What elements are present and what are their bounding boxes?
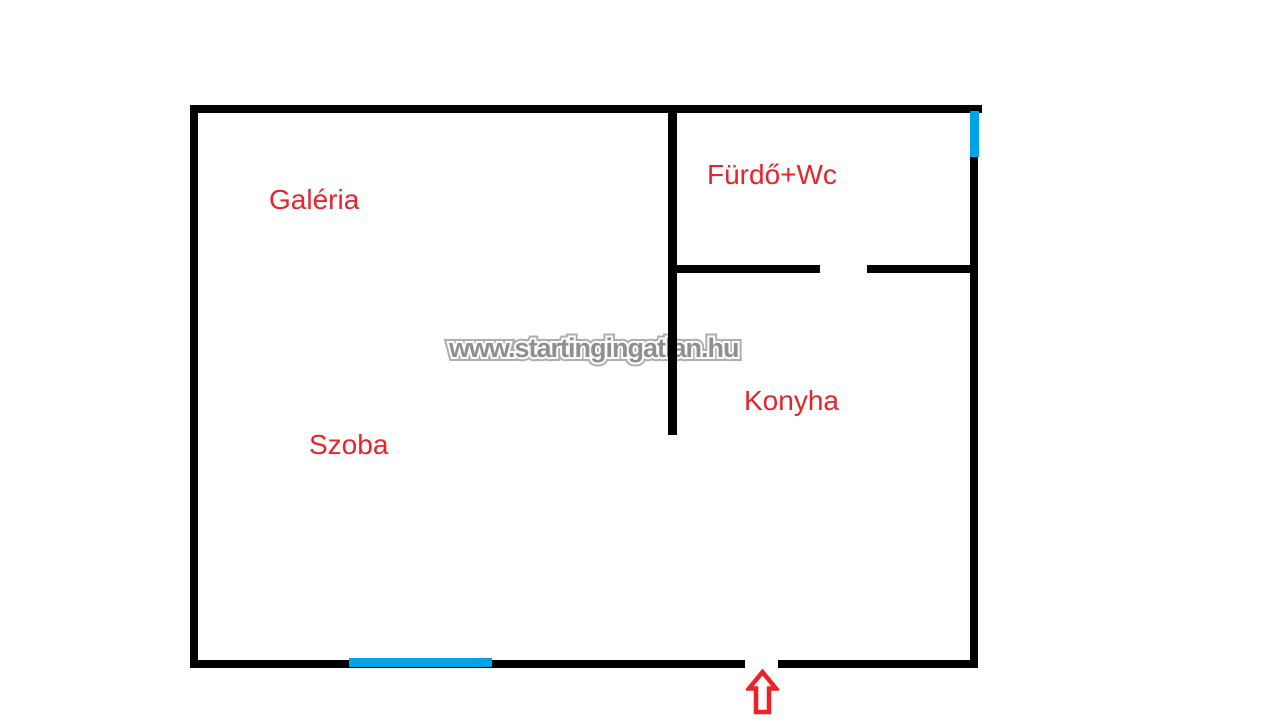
window-marker-bathroom-right [970,111,979,157]
room-label-szoba: Szoba [309,430,388,461]
window-marker-szoba-bottom [349,658,492,667]
room-label-galeria: Galéria [269,185,359,216]
wall-top [190,105,982,113]
room-label-konyha: Konyha [744,386,839,417]
wall-bathroom-bottom-right-of-door [867,265,978,273]
floor-plan-canvas: www.startingingatlan.hu www.startinginga… [0,0,1280,720]
watermark-text: www.startingingatlan.hu [449,332,739,364]
watermark: www.startingingatlan.hu www.startinginga… [449,332,739,364]
wall-bottom-right-of-entrance [778,660,978,668]
wall-bathroom-bottom-left-of-door [668,265,820,273]
entrance-arrow-icon [746,669,779,720]
wall-left [190,105,198,668]
room-label-furdo-wc: Fürdő+Wc [707,160,837,191]
wall-right [970,105,978,668]
